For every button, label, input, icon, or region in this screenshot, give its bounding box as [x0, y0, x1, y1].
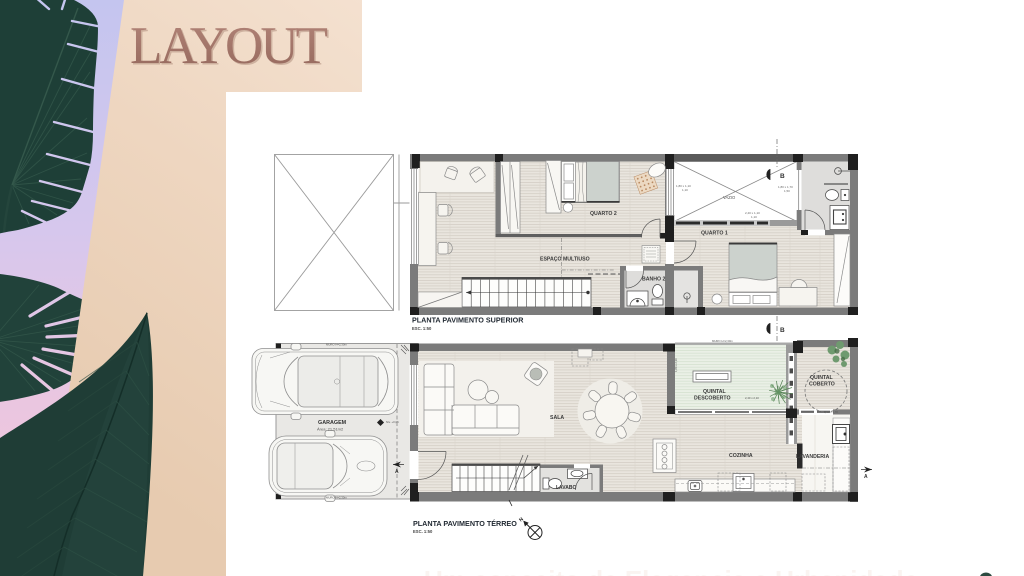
svg-text:BANHO 2: BANHO 2: [642, 277, 665, 283]
svg-text:A: A: [395, 469, 399, 475]
svg-text:QUARTO 1: QUARTO 1: [701, 231, 728, 237]
svg-text:1,50: 1,50: [784, 189, 790, 193]
svg-text:VAZIO: VAZIO: [723, 195, 736, 200]
svg-text:ESC. 1:50: ESC. 1:50: [412, 326, 432, 331]
svg-text:DESCOBERTO: DESCOBERTO: [694, 396, 731, 402]
svg-text:SALA: SALA: [550, 415, 564, 421]
svg-text:PLANTA PAVIMENTO SUPERIOR: PLANTA PAVIMENTO SUPERIOR: [412, 316, 524, 325]
svg-text:1,10: 1,10: [682, 188, 688, 192]
svg-text:Nív. +0,05: Nív. +0,05: [386, 420, 399, 424]
svg-text:COZINHA: COZINHA: [729, 453, 753, 459]
svg-text:QUINTAL: QUINTAL: [703, 389, 726, 395]
svg-text:GARAGEM: GARAGEM: [318, 420, 347, 426]
svg-text:QUARTO 2: QUARTO 2: [590, 211, 617, 217]
svg-text:ESPAÇO MULTIUSO: ESPAÇO MULTIUSO: [540, 257, 590, 263]
svg-text:LAYOUT: LAYOUT: [130, 17, 328, 75]
svg-text:B: B: [780, 327, 785, 334]
svg-text:QUINTAL: QUINTAL: [810, 375, 833, 381]
svg-text:Área: 21,51m2: Área: 21,51m2: [317, 427, 344, 432]
svg-text:LAVABO: LAVABO: [556, 485, 576, 491]
svg-text:2,40 x 2,10: 2,40 x 2,10: [745, 396, 759, 400]
svg-text:1,10: 1,10: [751, 215, 757, 219]
svg-text:B: B: [780, 173, 785, 180]
svg-text:PLANTA PAVIMENTO TÉRREO: PLANTA PAVIMENTO TÉRREO: [413, 519, 517, 528]
svg-text:A: A: [864, 474, 868, 480]
svg-text:COBERTO: COBERTO: [809, 382, 835, 388]
svg-text:MURO H=2,30m: MURO H=2,30m: [326, 343, 347, 347]
svg-text:3,90 x 1,70: 3,90 x 1,70: [824, 410, 838, 414]
svg-text:ESC. 1:50: ESC. 1:50: [413, 529, 433, 534]
svg-text:1,80 x 2,30: 1,80 x 2,30: [674, 358, 678, 372]
svg-text:LAVANDERIA: LAVANDERIA: [796, 454, 829, 460]
svg-text:Um conceito de Elegancia e Urb: Um conceito de Elegancia e Urbanidade: [424, 565, 918, 576]
svg-text:MURO H=2,30m: MURO H=2,30m: [712, 339, 733, 343]
svg-text:MURO H=2,30m: MURO H=2,30m: [326, 495, 347, 499]
